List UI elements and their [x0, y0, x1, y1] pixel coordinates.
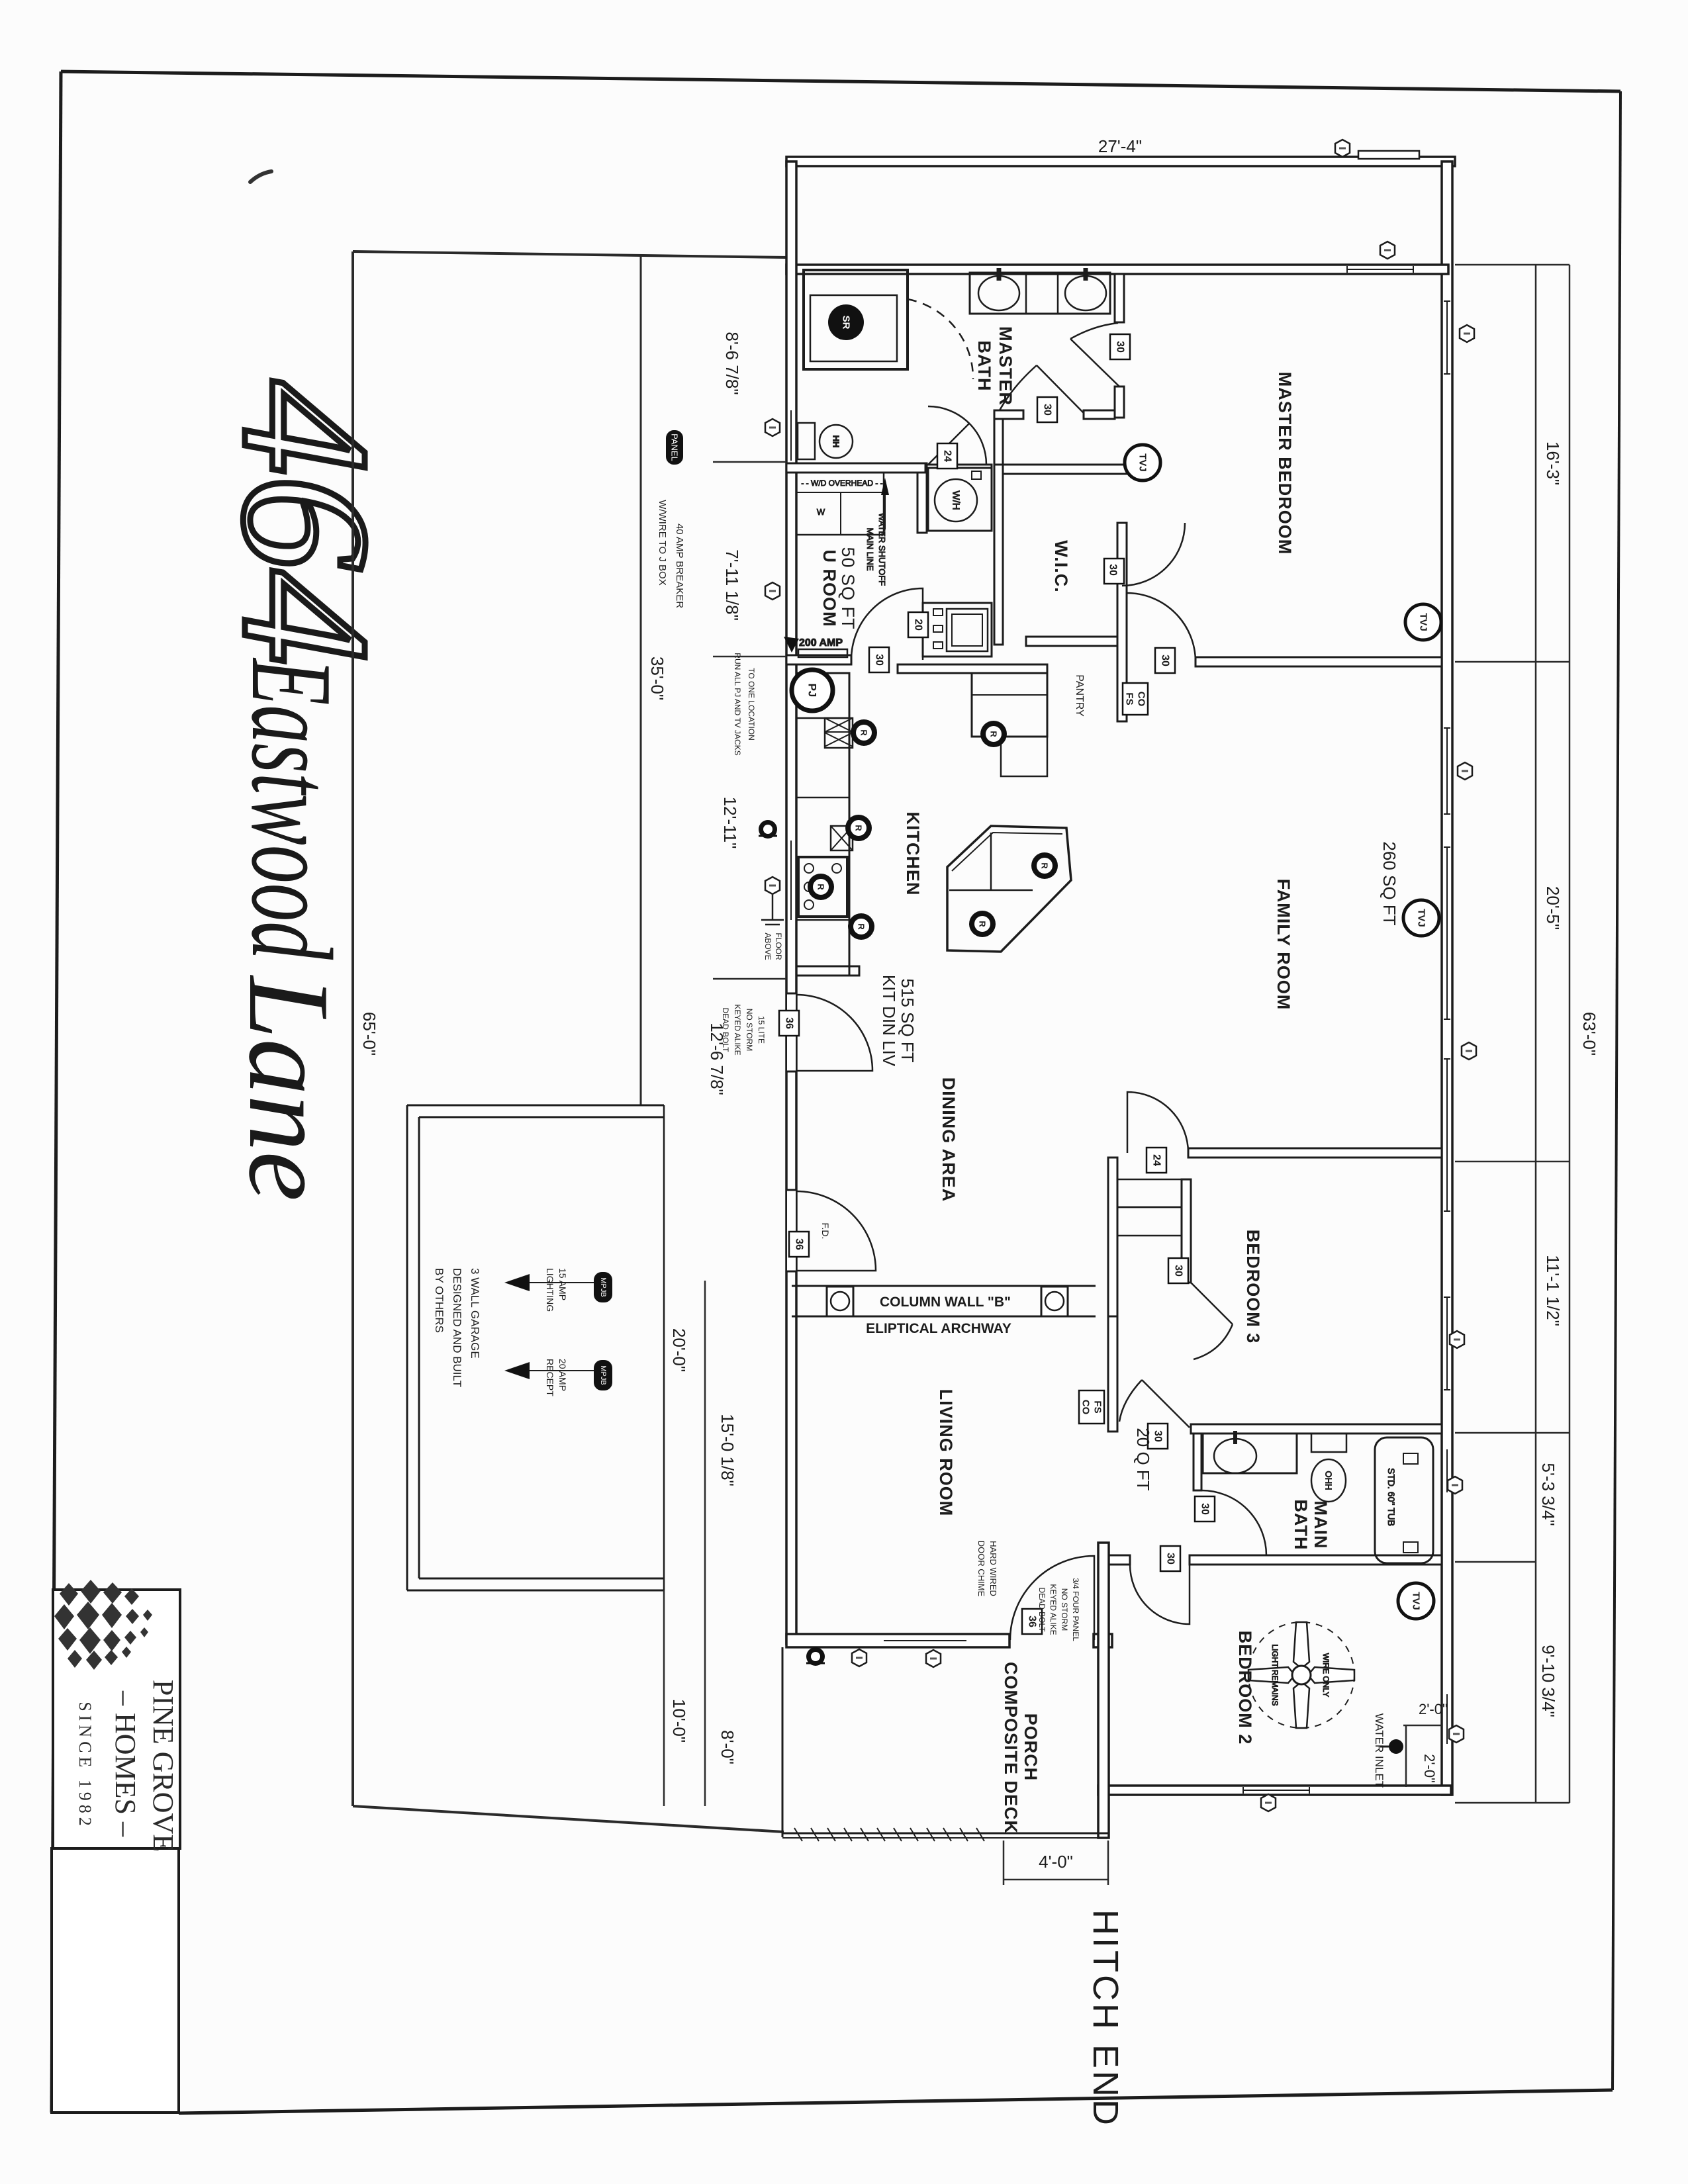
svg-text:MAIN LINE: MAIN LINE [865, 527, 875, 570]
svg-text:260 SQ FT: 260 SQ FT [1380, 841, 1399, 925]
svg-text:KEYED ALIKE: KEYED ALIKE [733, 1004, 742, 1055]
svg-text:RECEPT: RECEPT [545, 1359, 555, 1396]
svg-text:MAIN: MAIN [1311, 1501, 1331, 1549]
svg-text:5'-3 3/4": 5'-3 3/4" [1538, 1463, 1558, 1525]
svg-text:515 SQ FT: 515 SQ FT [898, 978, 917, 1062]
svg-text:2'-0": 2'-0" [1419, 1701, 1448, 1717]
svg-text:LIGHTING: LIGHTING [545, 1268, 555, 1312]
svg-text:ELIPTICAL ARCHWAY: ELIPTICAL ARCHWAY [866, 1321, 1011, 1336]
svg-text:200 AMP: 200 AMP [799, 637, 843, 649]
svg-text:W/WIRE TO J BOX: W/WIRE TO J BOX [657, 500, 668, 585]
svg-text:LIVING ROOM: LIVING ROOM [936, 1389, 956, 1517]
svg-text:BEDROOM 3: BEDROOM 3 [1243, 1230, 1263, 1344]
svg-text:- - W/D OVERHEAD - -: - - W/D OVERHEAD - - [801, 478, 882, 488]
svg-text:11'-1 1/2": 11'-1 1/2" [1543, 1255, 1563, 1326]
svg-text:FLOOR: FLOOR [774, 933, 783, 960]
svg-text:12'-11": 12'-11" [720, 797, 740, 849]
svg-text:FAMILY ROOM: FAMILY ROOM [1274, 879, 1293, 1011]
svg-text:W/H: W/H [951, 490, 962, 510]
svg-text:W: W [817, 507, 825, 517]
svg-text:15'-0 1/8": 15'-0 1/8" [718, 1414, 737, 1486]
svg-text:35'-0": 35'-0" [647, 657, 667, 700]
svg-text:36: 36 [794, 1238, 805, 1250]
svg-text:MPJB: MPJB [599, 1365, 607, 1385]
svg-text:BATH: BATH [1291, 1500, 1311, 1551]
svg-text:50 SQ FT: 50 SQ FT [838, 547, 858, 629]
svg-text:ABOVE: ABOVE [763, 933, 773, 960]
svg-text:8'-6 7/8": 8'-6 7/8" [722, 332, 742, 394]
svg-text:Lane: Lane [225, 974, 353, 1201]
svg-text:MASTER BEDROOM: MASTER BEDROOM [1275, 372, 1295, 555]
svg-text:– HOMES –: – HOMES – [109, 1690, 142, 1837]
svg-text:15 AMP: 15 AMP [557, 1268, 568, 1300]
svg-text:30: 30 [1160, 655, 1171, 666]
svg-text:COLUMN WALL "B": COLUMN WALL "B" [880, 1295, 1011, 1310]
svg-text:STD. 60" TUB: STD. 60" TUB [1386, 1468, 1397, 1526]
svg-text:24: 24 [942, 450, 953, 462]
svg-text:4'-0": 4'-0" [1039, 1852, 1073, 1872]
svg-text:HARD WIRED: HARD WIRED [988, 1541, 998, 1596]
svg-text:LIGHT REMAINS: LIGHT REMAINS [1270, 1644, 1280, 1706]
svg-text:10'-0": 10'-0" [669, 1699, 689, 1743]
svg-text:65'-0": 65'-0" [359, 1012, 379, 1056]
svg-text:30: 30 [1152, 1430, 1164, 1442]
svg-text:20'-0": 20'-0" [669, 1328, 689, 1372]
svg-text:20 AMP: 20 AMP [557, 1359, 568, 1391]
svg-text:OHH: OHH [1324, 1471, 1334, 1490]
svg-text:DINING AREA: DINING AREA [939, 1077, 959, 1203]
svg-text:DEAD BOLT: DEAD BOLT [721, 1007, 730, 1052]
svg-text:63'-0": 63'-0" [1579, 1012, 1599, 1056]
svg-text:RUN ALL PJ AND TV JACKS: RUN ALL PJ AND TV JACKS [733, 653, 742, 755]
svg-text:30: 30 [1115, 341, 1126, 353]
svg-text:27'-4": 27'-4" [1098, 136, 1142, 156]
svg-text:30: 30 [1173, 1265, 1184, 1277]
svg-text:15 LITE: 15 LITE [757, 1016, 766, 1044]
svg-text:2'-0": 2'-0" [1421, 1754, 1438, 1783]
svg-text:COMPOSITE DECK: COMPOSITE DECK [1001, 1662, 1021, 1834]
svg-text:16'-3": 16'-3" [1543, 441, 1563, 485]
svg-text:KIT DIN LIV: KIT DIN LIV [879, 975, 899, 1067]
svg-text:7'-11 1/8": 7'-11 1/8" [722, 549, 742, 621]
svg-text:F.D.: F.D. [820, 1223, 831, 1240]
svg-text:NO STORM: NO STORM [1060, 1588, 1069, 1631]
svg-text:DEAD BOLT: DEAD BOLT [1037, 1587, 1047, 1632]
svg-text:36: 36 [1027, 1615, 1038, 1627]
svg-text:DESIGNED AND BUILT: DESIGNED AND BUILT [451, 1268, 463, 1387]
svg-text:20: 20 [913, 619, 924, 631]
svg-text:BATH: BATH [974, 341, 994, 392]
svg-text:SR: SR [841, 316, 852, 330]
svg-text:KITCHEN: KITCHEN [903, 812, 923, 896]
svg-text:30: 30 [1199, 1503, 1211, 1515]
svg-text:30: 30 [874, 654, 885, 666]
svg-text:FS: FS [1124, 692, 1135, 705]
svg-text:BEDROOM 2: BEDROOM 2 [1235, 1631, 1255, 1745]
svg-text:BY OTHERS: BY OTHERS [433, 1268, 445, 1333]
svg-text:WIRE ONLY: WIRE ONLY [1321, 1653, 1331, 1697]
svg-text:30: 30 [1042, 404, 1053, 416]
svg-text:TO ONE LOCATION: TO ONE LOCATION [747, 668, 756, 741]
svg-text:Eastwood: Eastwood [228, 657, 356, 960]
svg-text:3/4 FOUR PANEL: 3/4 FOUR PANEL [1071, 1578, 1080, 1641]
svg-text:36: 36 [784, 1017, 795, 1029]
svg-text:SINCE 1982: SINCE 1982 [75, 1702, 95, 1830]
svg-text:9'-10 3/4": 9'-10 3/4" [1538, 1645, 1558, 1717]
svg-text:40 AMP BREAKER: 40 AMP BREAKER [674, 523, 685, 608]
svg-text:DOOR CHIME: DOOR CHIME [976, 1541, 986, 1597]
svg-text:464: 464 [205, 381, 406, 665]
svg-text:PINE GROVE: PINE GROVE [147, 1680, 179, 1852]
svg-text:WATER INLET: WATER INLET [1373, 1713, 1385, 1788]
svg-text:MASTER: MASTER [996, 326, 1015, 406]
svg-text:8'-0": 8'-0" [718, 1730, 737, 1764]
svg-text:30: 30 [1165, 1553, 1176, 1565]
svg-text:MPJB: MPJB [599, 1277, 607, 1297]
svg-text:PANEL: PANEL [670, 433, 680, 461]
svg-text:CO: CO [1136, 692, 1147, 707]
svg-text:24: 24 [1151, 1154, 1162, 1166]
svg-text:W.I.C.: W.I.C. [1051, 540, 1071, 593]
svg-text:KEYED ALIKE: KEYED ALIKE [1049, 1584, 1058, 1635]
svg-text:PANTRY: PANTRY [1074, 674, 1085, 717]
svg-text:NO STORM: NO STORM [745, 1009, 754, 1051]
svg-text:U ROOM: U ROOM [820, 550, 839, 627]
svg-text:PORCH: PORCH [1021, 1713, 1041, 1782]
svg-text:PJ: PJ [806, 684, 819, 698]
svg-text:HITCH END: HITCH END [1086, 1909, 1125, 2128]
svg-text:HH: HH [831, 435, 841, 448]
svg-text:30: 30 [1107, 564, 1119, 576]
svg-text:20'-5": 20'-5" [1543, 886, 1563, 930]
svg-text:3 WALL GARAGE: 3 WALL GARAGE [469, 1268, 481, 1359]
svg-text:FS: FS [1092, 1400, 1103, 1413]
svg-text:CO: CO [1080, 1400, 1092, 1415]
svg-text:20 Q FT: 20 Q FT [1133, 1428, 1153, 1490]
